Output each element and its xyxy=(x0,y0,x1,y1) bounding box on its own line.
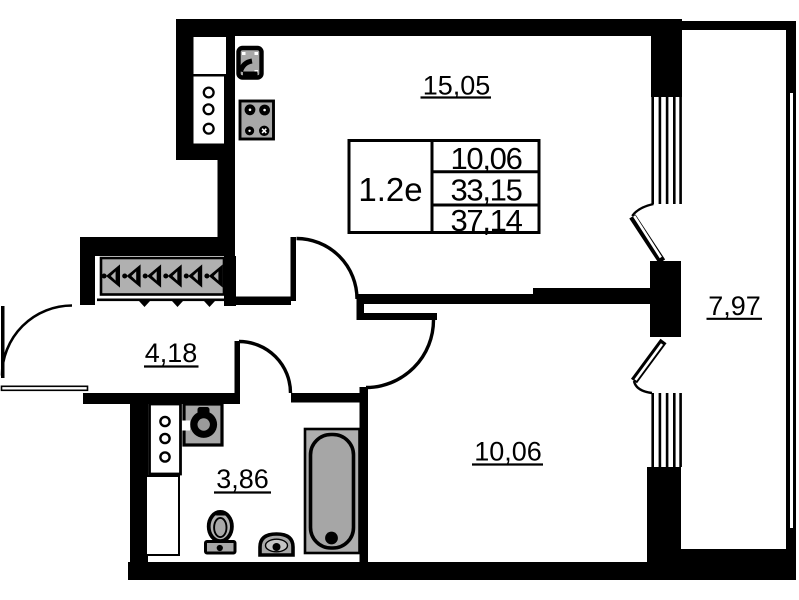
svg-text:4,18: 4,18 xyxy=(145,338,198,368)
svg-text:1.2е: 1.2е xyxy=(358,171,422,208)
svg-text:10,06: 10,06 xyxy=(450,141,521,176)
svg-text:10,06: 10,06 xyxy=(474,437,542,467)
svg-text:37,14: 37,14 xyxy=(450,203,522,238)
svg-text:15,05: 15,05 xyxy=(423,71,491,101)
svg-text:3,86: 3,86 xyxy=(216,464,269,494)
svg-text:7,97: 7,97 xyxy=(708,291,761,321)
